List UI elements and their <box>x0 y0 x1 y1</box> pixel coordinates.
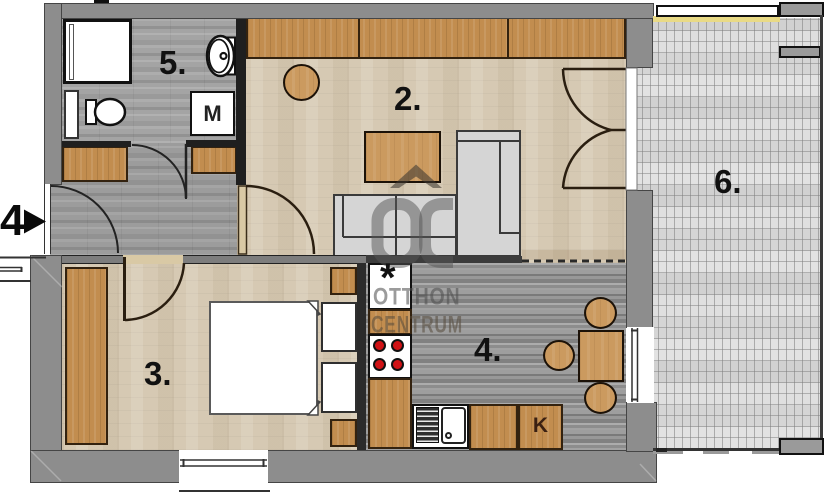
svg-text:CENTRUM: CENTRUM <box>371 311 463 339</box>
